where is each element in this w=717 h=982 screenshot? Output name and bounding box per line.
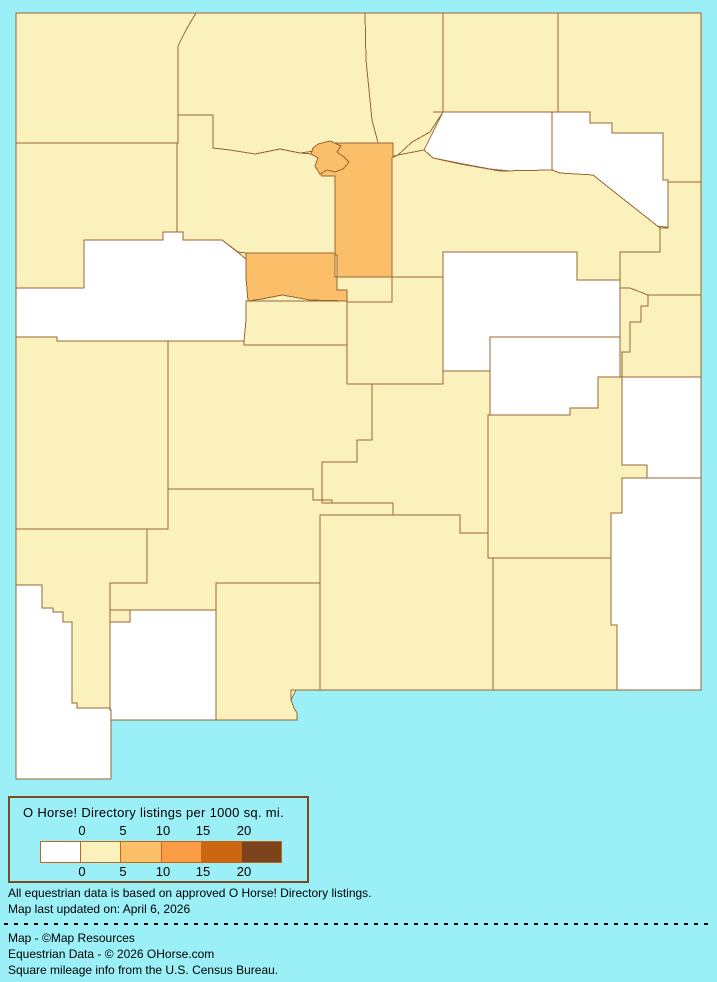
ramp-swatch-15-20: [202, 842, 242, 862]
map-credit: Map - ©Map Resources: [8, 931, 135, 945]
county-bernalillo: [246, 253, 347, 301]
tick-label: 10: [156, 864, 170, 879]
data-credit: Equestrian Data - © 2026 OHorse.com: [8, 947, 214, 961]
dashed-separator: [4, 923, 713, 925]
tick-label: 0: [78, 823, 85, 838]
county-roosevelt: [622, 377, 701, 478]
last-updated-note: Map last updated on: April 6, 2026: [8, 902, 190, 916]
new-mexico-county-map: [0, 0, 717, 790]
legend-title: O Horse! Directory listings per 1000 sq.…: [23, 805, 284, 820]
county-lea: [611, 478, 701, 690]
county-san-juan: [16, 13, 196, 143]
page: O Horse! Directory listings per 1000 sq.…: [0, 0, 717, 982]
ramp-swatch-0-5: [81, 842, 121, 862]
tick-label: 20: [237, 864, 251, 879]
data-source-note: All equestrian data is based on approved…: [8, 886, 372, 900]
ramp-swatch-10-15: [162, 842, 202, 862]
county-colfax: [443, 13, 558, 112]
ramp-swatch-5-10: [121, 842, 161, 862]
county-otero: [320, 515, 493, 690]
tick-label: 5: [119, 823, 126, 838]
ramp-swatch-0: [41, 842, 81, 862]
tick-label: 15: [196, 864, 210, 879]
county-catron: [16, 337, 168, 529]
tick-label: 10: [156, 823, 170, 838]
legend: O Horse! Directory listings per 1000 sq.…: [8, 796, 309, 883]
tick-label: 5: [119, 864, 126, 879]
legend-color-ramp: [40, 841, 282, 863]
county-eddy: [493, 558, 617, 690]
county-dona-ana: [216, 583, 320, 720]
tick-label: 0: [78, 864, 85, 879]
tick-label: 15: [196, 823, 210, 838]
tick-label: 20: [237, 823, 251, 838]
county-luna: [110, 610, 216, 720]
county-valencia: [244, 301, 347, 345]
census-credit: Square mileage info from the U.S. Census…: [8, 963, 278, 977]
ramp-swatch-20-plus: [242, 842, 281, 862]
